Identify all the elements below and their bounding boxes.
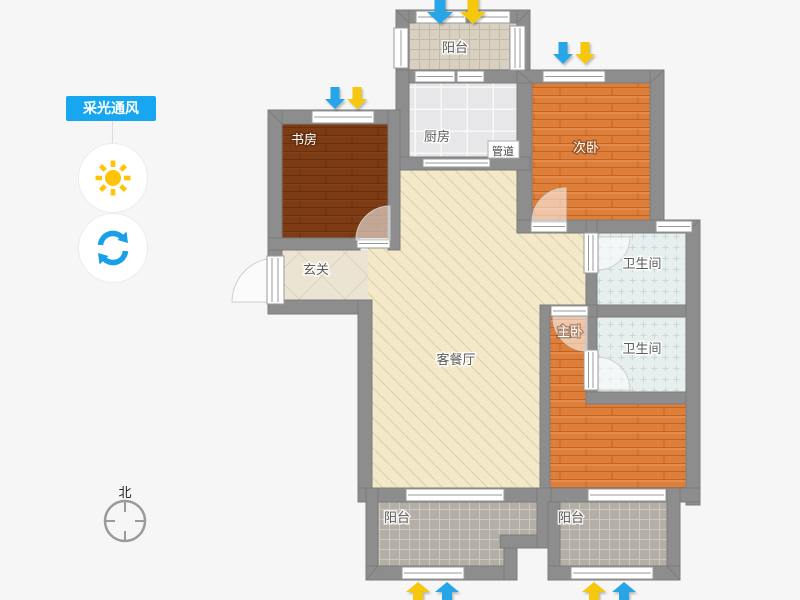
- compass: 北: [105, 485, 145, 541]
- bathroom-top-label: 卫生间: [622, 256, 661, 271]
- arrow-down-blue-study: [325, 87, 345, 109]
- balcony-bottom-left-label: 阳台: [384, 510, 410, 525]
- arrow-up-yellow-balcony-left: [406, 582, 430, 600]
- arrow-up-blue-balcony-right: [612, 582, 636, 600]
- compass-north-label: 北: [118, 485, 131, 500]
- master-bedroom-label: 主卧: [557, 324, 583, 339]
- second-bedroom-label: 次卧: [573, 140, 599, 155]
- arrow-down-blue-second-bedroom: [553, 42, 573, 64]
- arrow-up-yellow-balcony-right: [582, 582, 606, 600]
- foyer-label: 玄关: [303, 262, 329, 277]
- kitchen-label: 厨房: [424, 129, 450, 144]
- room-floors: [282, 23, 686, 566]
- arrow-down-yellow-study: [347, 87, 367, 109]
- floor-plan: 阳台 厨房 管道 书房 次卧 卫生间 玄关 客餐厅 主卧 卫生间 阳台 阳台 北: [0, 0, 800, 600]
- living-dining-label: 客餐厅: [436, 352, 475, 367]
- bathroom-bottom-label: 卫生间: [622, 341, 661, 356]
- duct-label: 管道: [492, 144, 514, 158]
- study-label: 书房: [291, 132, 317, 147]
- arrow-down-yellow-second-bedroom: [575, 42, 595, 64]
- balcony-bottom-right-label: 阳台: [558, 510, 584, 525]
- arrow-up-blue-balcony-left: [435, 582, 459, 600]
- balcony-top-label: 阳台: [442, 40, 468, 55]
